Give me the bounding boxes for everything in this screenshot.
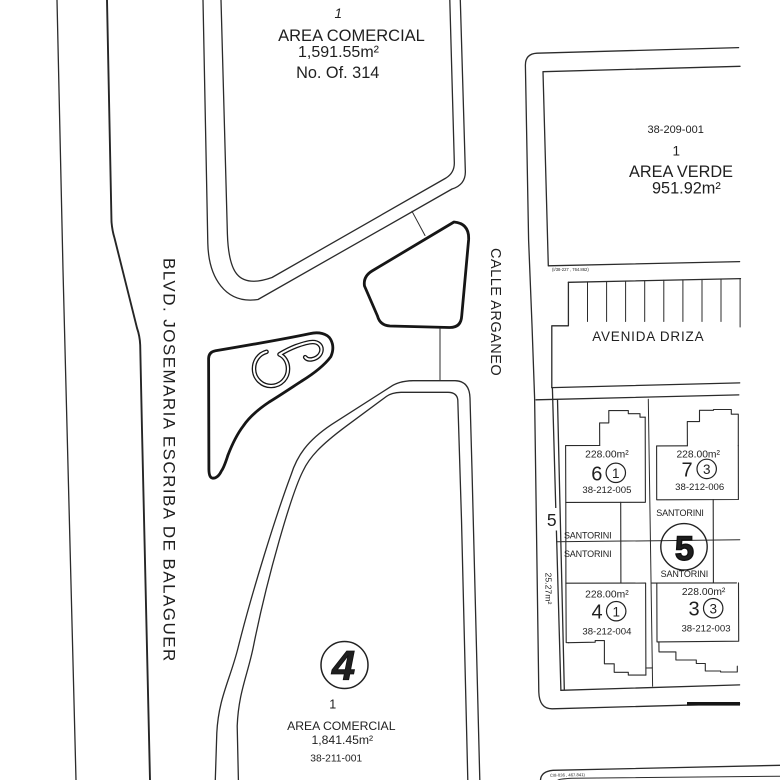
svg-text:1,841.45m²: 1,841.45m²: [311, 733, 373, 747]
svg-text:3: 3: [688, 599, 699, 621]
svg-text:SANTORINI: SANTORINI: [656, 508, 704, 518]
svg-text:1: 1: [612, 466, 620, 481]
svg-text:38-212-005: 38-212-005: [582, 485, 631, 496]
svg-text:38-212-006: 38-212-006: [675, 482, 724, 493]
svg-text:6: 6: [591, 463, 602, 485]
svg-text:38-212-004: 38-212-004: [582, 626, 632, 637]
svg-text:AREA COMERCIAL: AREA COMERCIAL: [278, 27, 425, 45]
svg-text:1: 1: [335, 6, 343, 21]
svg-text:1: 1: [612, 604, 620, 619]
svg-text:4: 4: [331, 642, 355, 689]
svg-text:38-211-001: 38-211-001: [310, 754, 362, 765]
svg-text:SANTORINI: SANTORINI: [564, 530, 612, 540]
svg-text:38-209-001: 38-209-001: [648, 124, 704, 136]
svg-text:AREA VERDE: AREA VERDE: [629, 163, 733, 181]
svg-text:951.92m²: 951.92m²: [652, 180, 721, 198]
svg-text:228.00m²: 228.00m²: [585, 449, 629, 460]
svg-text:No. Of. 314: No. Of. 314: [296, 64, 379, 82]
svg-text:228.00m²: 228.00m²: [585, 590, 629, 601]
svg-text:AVENIDA DRIZA: AVENIDA DRIZA: [592, 329, 704, 344]
svg-text:CALLE ARGANEO: CALLE ARGANEO: [487, 248, 503, 376]
svg-text:AREA COMERCIAL: AREA COMERCIAL: [287, 719, 396, 733]
svg-text:1,591.55m²: 1,591.55m²: [298, 44, 380, 61]
svg-text:25.27m²: 25.27m²: [544, 573, 554, 605]
svg-text:38-212-003: 38-212-003: [681, 624, 730, 635]
svg-text:5: 5: [547, 510, 557, 530]
svg-text:3: 3: [703, 462, 711, 477]
svg-text:228.00m²: 228.00m²: [682, 587, 726, 598]
svg-text:5: 5: [675, 530, 694, 568]
svg-text:3: 3: [709, 601, 717, 616]
svg-text:1: 1: [329, 698, 336, 712]
svg-text:1: 1: [673, 144, 681, 159]
svg-text:4: 4: [591, 602, 602, 624]
svg-text:SANTORINI: SANTORINI: [564, 549, 612, 559]
svg-text:BLVD. JOSEMARIA ESCRIBA DE BAL: BLVD. JOSEMARIA ESCRIBA DE BALAGUER: [160, 258, 179, 663]
svg-text:7: 7: [681, 459, 692, 481]
svg-text:(I/38-227 , 764.862): (I/38-227 , 764.862): [552, 267, 589, 272]
svg-text:C/8-036 , 467.841): C/8-036 , 467.841): [550, 772, 586, 778]
